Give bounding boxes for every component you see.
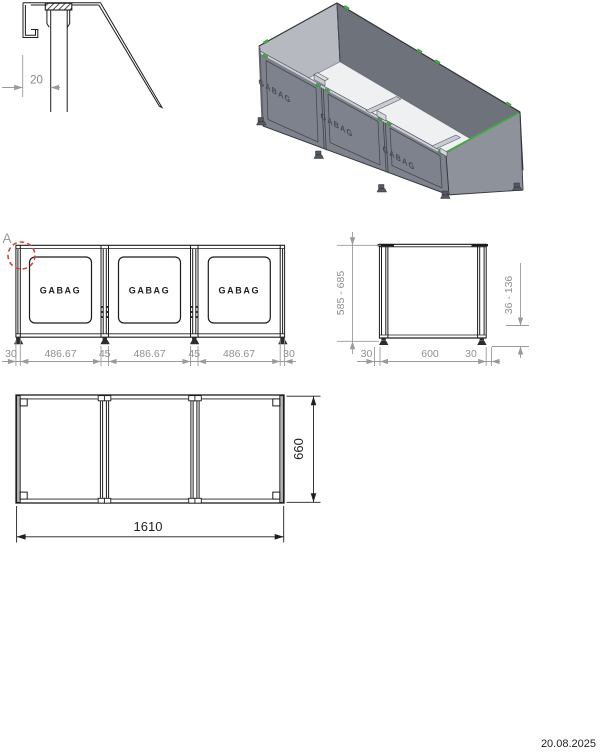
- side-feet: [379, 338, 487, 345]
- seal-block: [45, 3, 72, 10]
- hinge-pins: [101, 306, 198, 318]
- side-dim-600: 600: [421, 348, 439, 360]
- front-dimensions: 30 486.67 45 486.67 45 486.67 30: [2, 340, 296, 366]
- date-label: 20.08.2025: [476, 738, 596, 750]
- side-clearance-dimension: 36 - 136: [492, 263, 529, 358]
- plan-view: 660 1610: [16, 395, 321, 543]
- side-height-label: 585 - 685: [335, 271, 347, 316]
- plan-depth-dimension: 660: [287, 396, 321, 502]
- front-panel-logo-1: GABAG: [40, 286, 82, 296]
- plan-length-dimension: 1610: [17, 506, 284, 543]
- cad-drawing: 20 GABAG GABAG: [0, 0, 600, 752]
- detail-dimension-20: 20: [2, 55, 60, 97]
- plan-length-label: 1610: [134, 519, 163, 534]
- front-dim-486-1: 486.67: [44, 348, 76, 360]
- front-feet: [14, 337, 288, 344]
- side-height-dimension: 585 - 685: [335, 232, 381, 354]
- side-dim-30-right: 30: [465, 348, 477, 360]
- iso-view: GABAG GABAG GABAG: [257, 3, 524, 199]
- plan-left-band: [17, 396, 21, 503]
- front-dim-45-1: 45: [99, 348, 111, 360]
- drawing-page: 20 GABAG GABAG: [0, 0, 600, 752]
- front-panel-logo-3: GABAG: [219, 286, 261, 296]
- front-dim-45-2: 45: [188, 348, 200, 360]
- detail-view-a: 20: [2, 3, 162, 112]
- front-view: GABAG GABAG GABAG A: [2, 231, 296, 366]
- front-dim-486-3: 486.67: [223, 348, 255, 360]
- front-dim-30-left: 30: [5, 348, 17, 360]
- detail-dim-label: 20: [30, 75, 43, 87]
- detail-marker-label: A: [2, 231, 11, 246]
- side-dim-30-left: 30: [361, 348, 373, 360]
- side-view: 585 - 685 36 - 136 30: [335, 232, 529, 366]
- front-dim-30-right: 30: [283, 348, 295, 360]
- side-clearance-label: 36 - 136: [503, 276, 515, 315]
- front-dim-486-2: 486.67: [133, 348, 165, 360]
- detail-circle-a: [8, 242, 35, 269]
- plan-depth-label: 660: [291, 438, 306, 460]
- side-bottom-dimensions: 30 600 30: [357, 347, 500, 366]
- plan-right-band: [280, 396, 284, 503]
- front-panel-logo-2: GABAG: [129, 286, 171, 296]
